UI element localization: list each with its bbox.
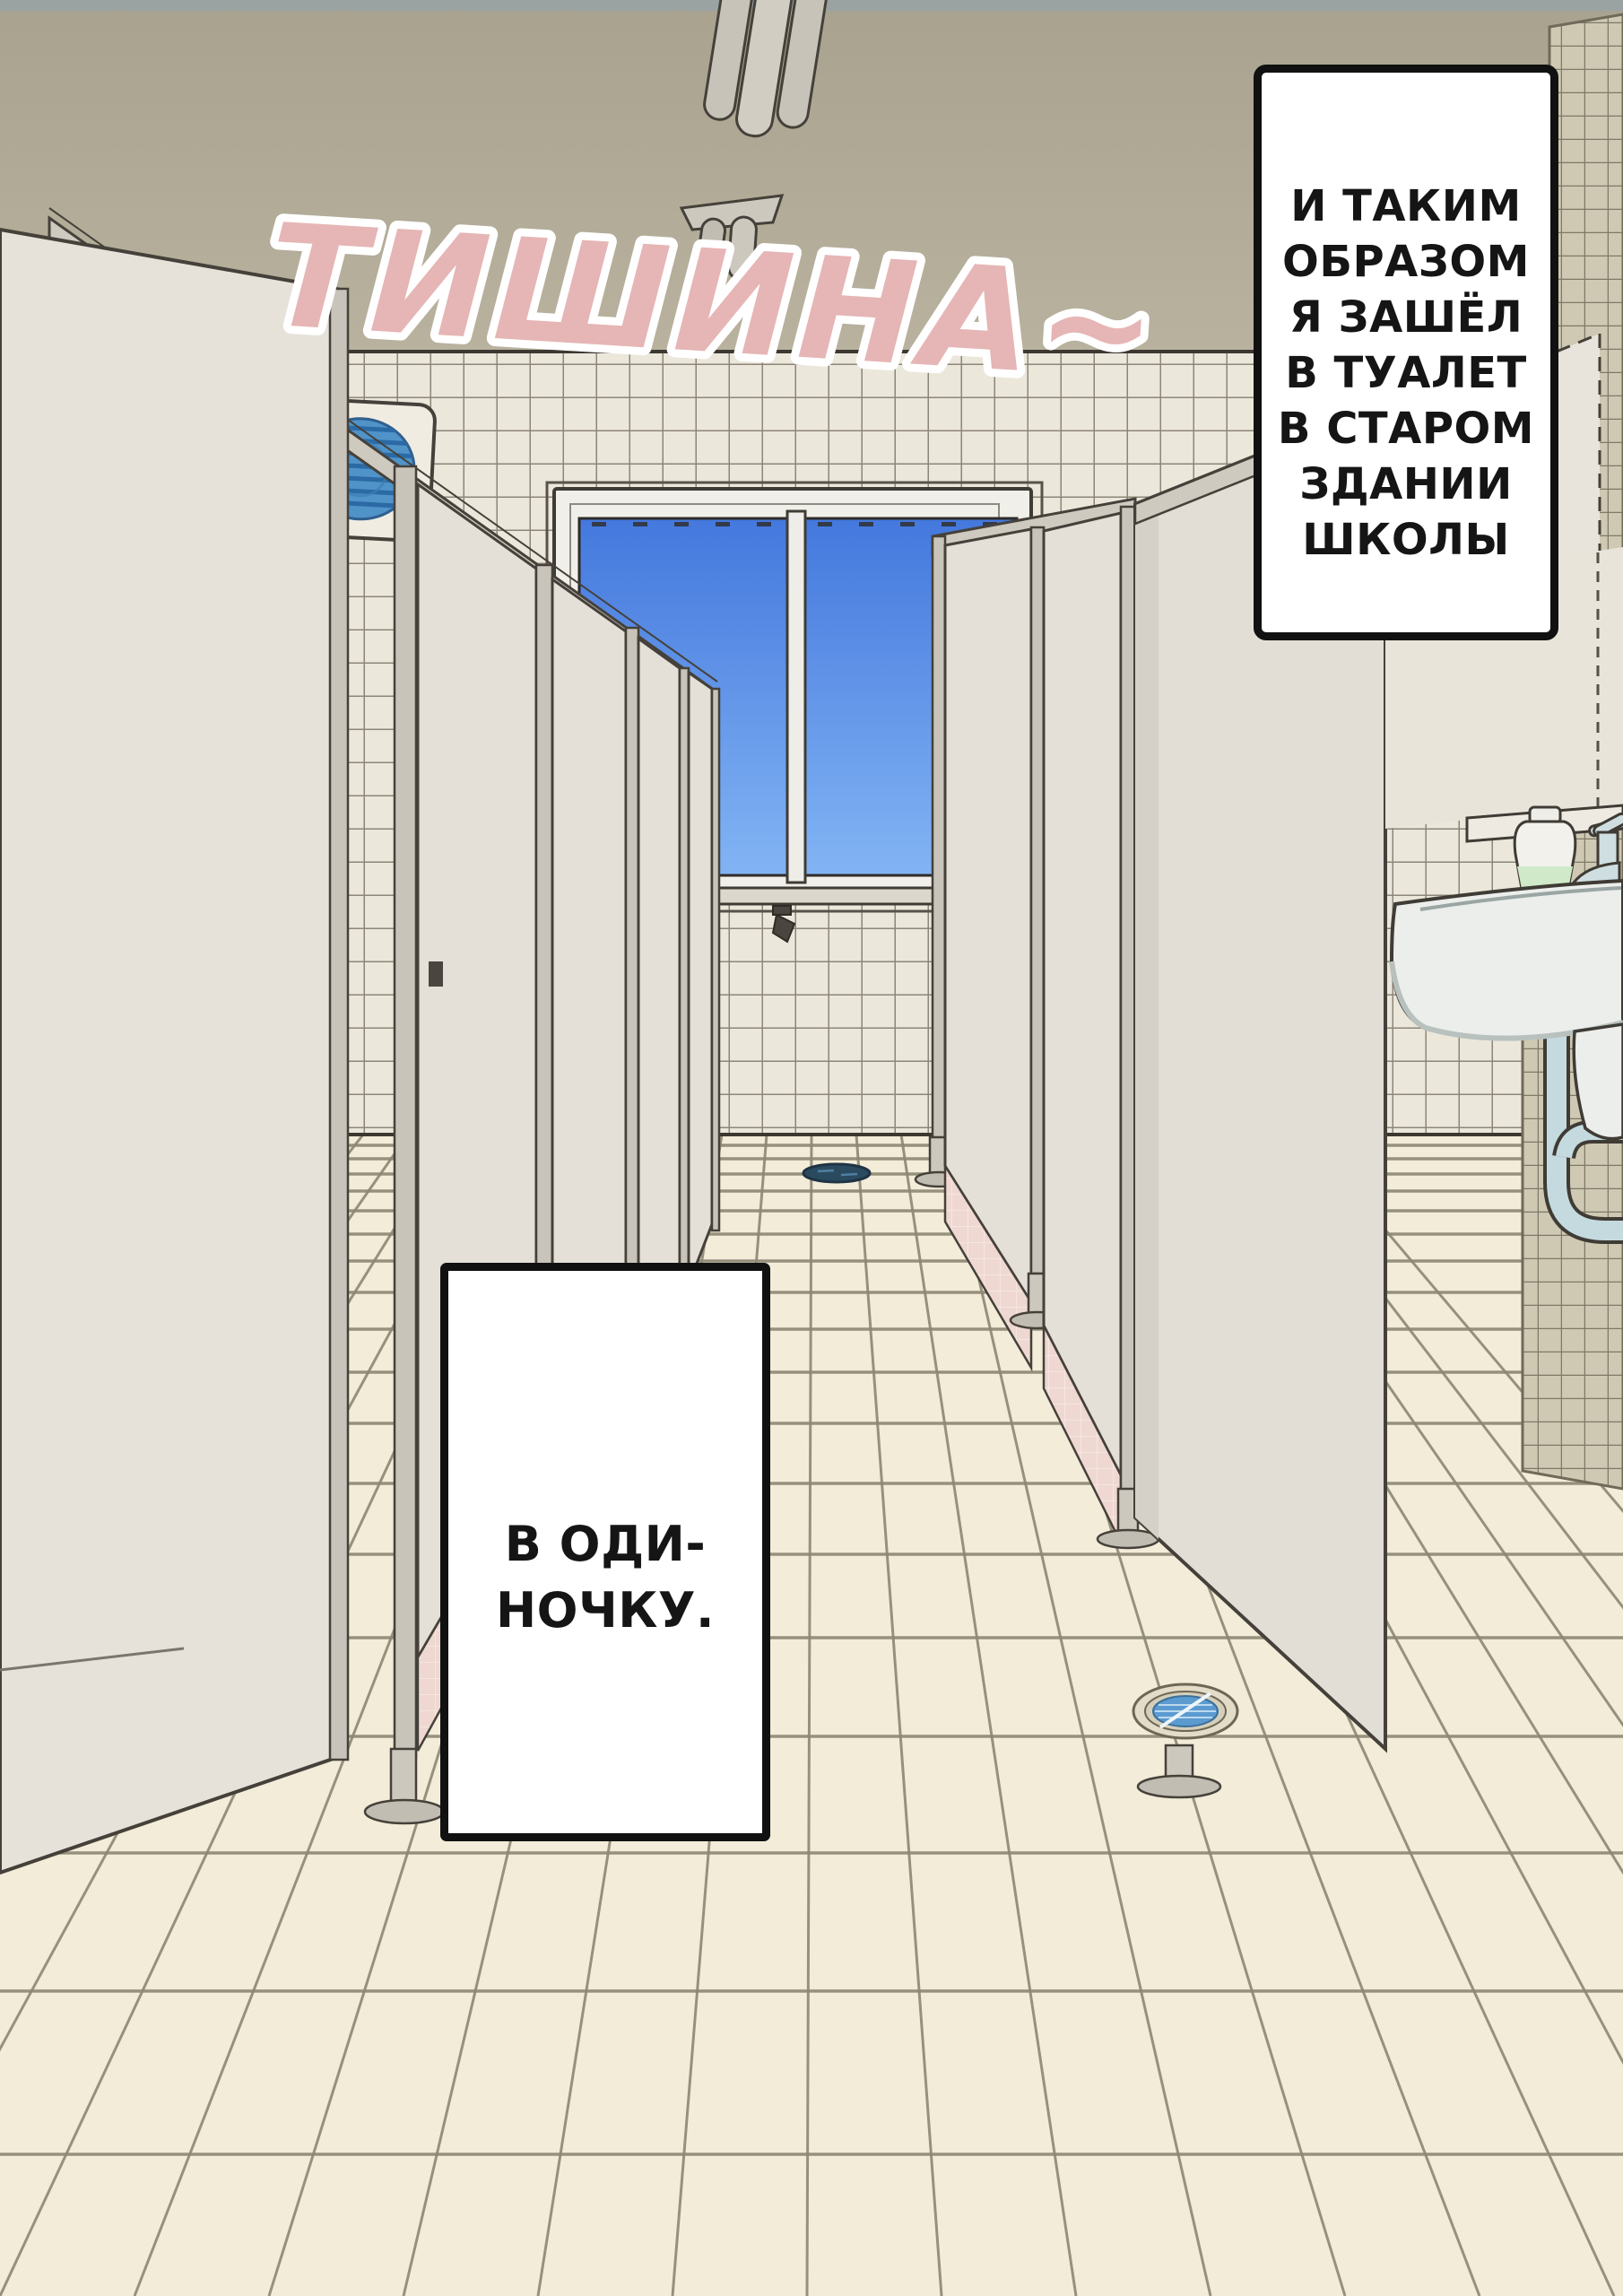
narration-line: В ТУАЛЕТ	[1285, 345, 1527, 401]
narration-line: ЗДАНИИ	[1299, 457, 1513, 512]
sink-basin	[1392, 881, 1623, 1039]
stall-door	[1044, 513, 1121, 1475]
narration-line: ОБРАЗОМ	[1282, 234, 1530, 290]
manga-page: ТИШИНА~ И ТАКИМ ОБРАЗОМ Я ЗАШЁЛ В ТУАЛЕТ…	[0, 0, 1623, 2296]
stall-door	[638, 639, 680, 1365]
caption-box: В ОДИ- НОЧКУ.	[440, 1263, 770, 1841]
floor-drain-icon	[803, 1164, 870, 1182]
narration-line: ШКОЛЫ	[1302, 512, 1509, 568]
caption-line: В ОДИ-	[505, 1511, 707, 1578]
door-latch-icon	[429, 961, 443, 987]
floor-drain-round-icon	[1133, 1684, 1237, 1738]
narration-box: И ТАКИМ ОБРАЗОМ Я ЗАШЁЛ В ТУАЛЕТ В СТАРО…	[1254, 65, 1558, 640]
narration-line: В СТАРОМ	[1278, 401, 1534, 457]
stall-door	[689, 673, 712, 1284]
stall-side-panel	[0, 230, 346, 1873]
narration-line: И ТАКИМ	[1290, 178, 1521, 234]
narration-line: Я ЗАШЁЛ	[1289, 290, 1523, 345]
caption-line: НОЧКУ.	[496, 1578, 715, 1644]
